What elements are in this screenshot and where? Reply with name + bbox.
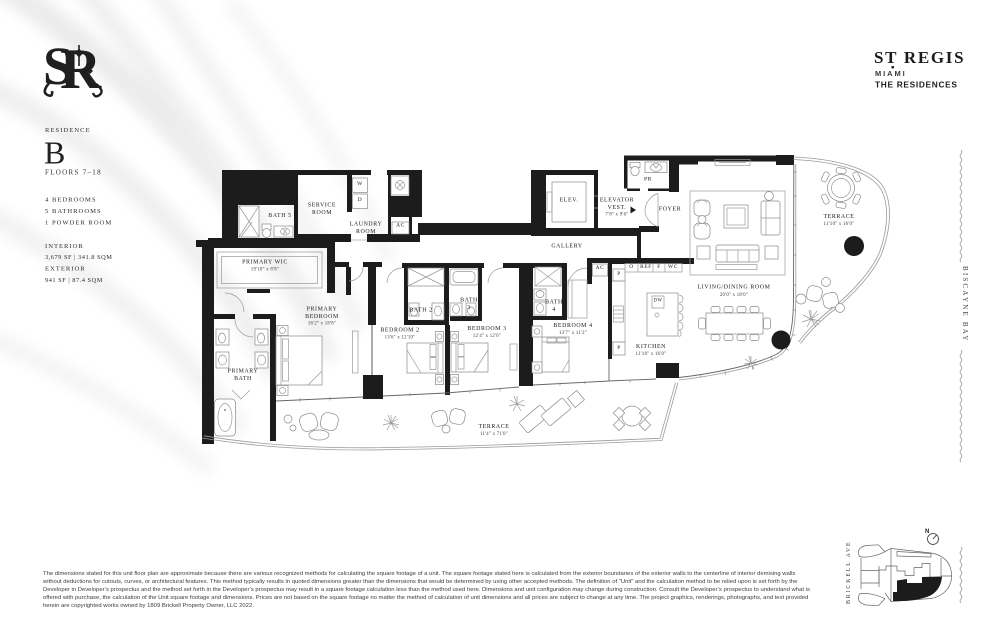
svg-text:WC: WC <box>668 264 678 270</box>
svg-text:5 BATHROOMS: 5 BATHROOMS <box>45 208 102 215</box>
svg-text:herein are copyrighted works o: herein are copyrighted works owned by 18… <box>43 603 254 609</box>
svg-text:THE RESIDENCES: THE RESIDENCES <box>875 80 958 90</box>
svg-text:BEDROOM: BEDROOM <box>305 314 339 320</box>
svg-text:BATH: BATH <box>545 300 563 306</box>
svg-text:BATH: BATH <box>460 298 478 304</box>
svg-text:P: P <box>617 271 621 277</box>
svg-text:AC: AC <box>396 223 405 229</box>
svg-text:FLOORS 7–18: FLOORS 7–18 <box>45 169 102 177</box>
svg-text:3: 3 <box>467 305 471 311</box>
svg-text:without deductions for cutouts: without deductions for cutouts, curves, … <box>42 579 798 585</box>
svg-text:AC: AC <box>596 265 605 271</box>
svg-text:GALLERY: GALLERY <box>551 244 583 250</box>
svg-text:PRIMARY: PRIMARY <box>228 369 259 375</box>
svg-text:D: D <box>358 197 363 203</box>
svg-text:7'8" x 9'6": 7'8" x 9'6" <box>606 213 629 218</box>
svg-text:BISCAYNE BAY: BISCAYNE BAY <box>961 266 969 343</box>
svg-text:TERRACE: TERRACE <box>823 214 854 220</box>
svg-text:P: P <box>617 345 621 351</box>
svg-text:ST REGIS: ST REGIS <box>874 48 965 67</box>
svg-text:RESIDENCE: RESIDENCE <box>45 127 91 134</box>
svg-text:REF: REF <box>640 264 652 270</box>
svg-text:19'10" x 8'8": 19'10" x 8'8" <box>251 268 279 273</box>
svg-text:BRICKELL AVE: BRICKELL AVE <box>846 541 852 604</box>
svg-text:LAUNDRY: LAUNDRY <box>350 222 383 228</box>
svg-text:ELEVATOR: ELEVATOR <box>600 198 634 204</box>
svg-text:LIVING/DINING ROOM: LIVING/DINING ROOM <box>698 285 771 291</box>
svg-text:EXTERIOR: EXTERIOR <box>45 266 86 273</box>
svg-text:BATH 5: BATH 5 <box>268 213 291 219</box>
svg-text:VEST.: VEST. <box>608 205 627 211</box>
svg-text:4: 4 <box>552 307 556 313</box>
svg-text:INTERIOR: INTERIOR <box>45 243 84 250</box>
svg-text:BATH: BATH <box>234 376 252 382</box>
svg-text:BEDROOM 2: BEDROOM 2 <box>380 328 419 334</box>
svg-text:13'7" x 11'2": 13'7" x 11'2" <box>559 331 587 336</box>
svg-text:BATH 2: BATH 2 <box>409 308 432 314</box>
svg-text:MIAMI: MIAMI <box>875 69 907 78</box>
svg-text:R: R <box>60 38 102 101</box>
svg-text:11'10" x 16'0": 11'10" x 16'0" <box>636 352 667 357</box>
svg-text:1 POWDER ROOM: 1 POWDER ROOM <box>45 220 112 227</box>
svg-text:F: F <box>657 264 661 270</box>
svg-text:11'4" x 71'0": 11'4" x 71'0" <box>480 432 508 437</box>
svg-text:SERVICE: SERVICE <box>308 203 336 209</box>
svg-text:4 BEDROOMS: 4 BEDROOMS <box>45 197 97 204</box>
svg-text:BEDROOM 3: BEDROOM 3 <box>467 326 506 332</box>
svg-text:12'4" x 12'0": 12'4" x 12'0" <box>473 334 501 339</box>
svg-text:11'10" x 16'0": 11'10" x 16'0" <box>824 222 855 227</box>
svg-text:KITCHEN: KITCHEN <box>636 344 666 350</box>
svg-text:ROOM: ROOM <box>356 229 376 235</box>
svg-text:offered with purchase, the cal: offered with purchase, the calculation o… <box>43 595 808 601</box>
svg-text:PR: PR <box>644 177 652 183</box>
svg-text:PRIMARY WIC: PRIMARY WIC <box>242 260 288 266</box>
svg-text:PRIMARY: PRIMARY <box>307 307 338 313</box>
svg-text:3,679 SF | 341.8 SQM: 3,679 SF | 341.8 SQM <box>45 254 112 261</box>
svg-text:B: B <box>44 135 65 171</box>
svg-text:W: W <box>357 181 363 187</box>
svg-text:BEDROOM 4: BEDROOM 4 <box>553 323 592 329</box>
svg-text:Developer in Developer’s prosp: Developer in Developer’s prospectus and … <box>43 587 810 593</box>
svg-text:TERRACE: TERRACE <box>478 424 509 430</box>
svg-text:FOYER: FOYER <box>659 207 681 213</box>
svg-text:N: N <box>925 529 929 535</box>
svg-text:The dimensions stated for this: The dimensions stated for this unit floo… <box>43 571 795 577</box>
svg-text:DW: DW <box>653 299 662 304</box>
svg-text:ELEV.: ELEV. <box>560 198 579 204</box>
svg-text:941 SF | 87.4 SQM: 941 SF | 87.4 SQM <box>45 277 103 284</box>
svg-text:13'6" x 12'10": 13'6" x 12'10" <box>385 336 416 341</box>
svg-text:16'2" x 18'8": 16'2" x 18'8" <box>308 322 336 327</box>
svg-text:ROOM: ROOM <box>312 210 332 216</box>
svg-text:20'0" x 18'0": 20'0" x 18'0" <box>720 293 748 298</box>
svg-text:O: O <box>629 264 634 270</box>
